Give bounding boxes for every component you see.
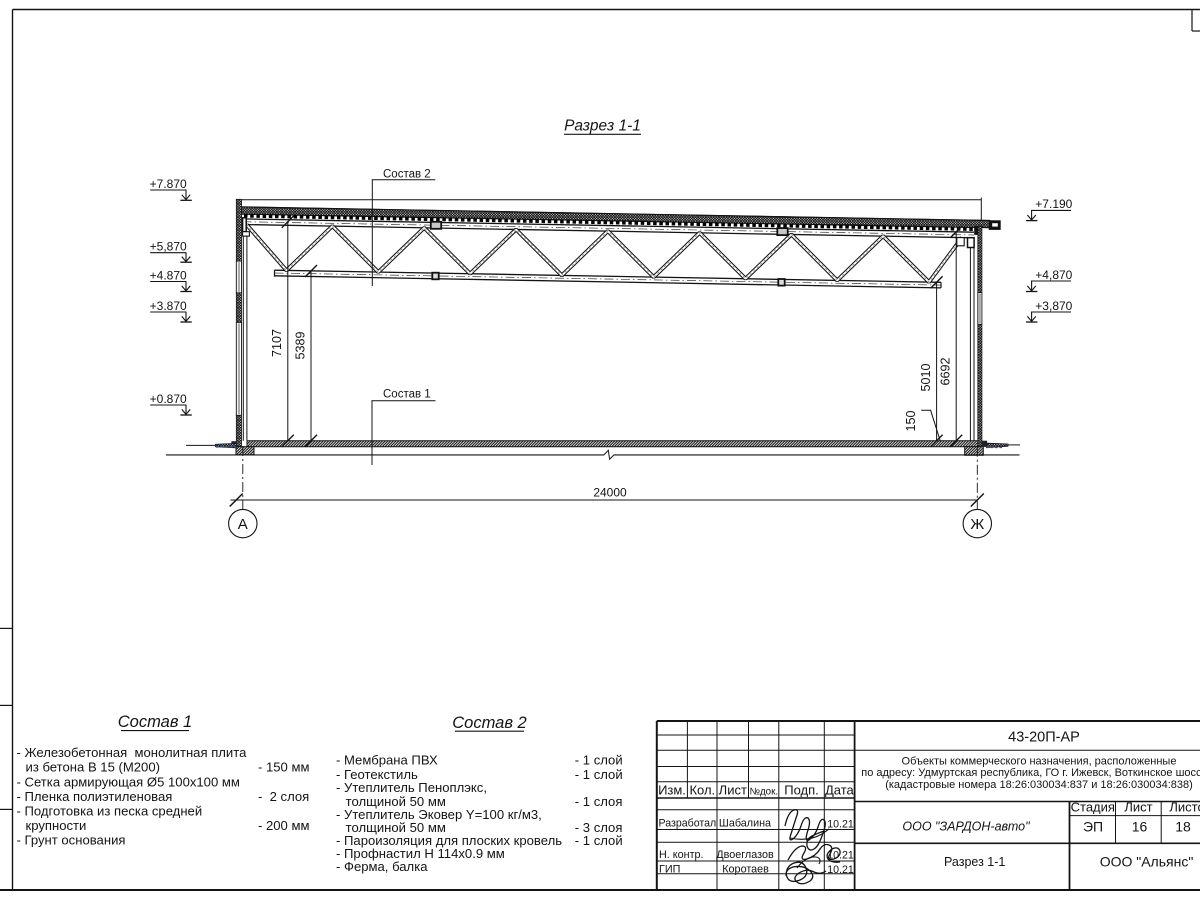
svg-text:- 200 мм: - 200 мм: [258, 818, 310, 833]
svg-text:Лист: Лист: [1124, 800, 1152, 815]
svg-text:- 1 слой: - 1 слой: [575, 833, 623, 848]
svg-text:- 2 слоя: - 2 слоя: [258, 789, 309, 804]
svg-text:Дата: Дата: [825, 782, 855, 797]
svg-text:крупности: крупности: [26, 818, 87, 833]
svg-text:16: 16: [1132, 818, 1148, 834]
svg-text:Листов: Листов: [1169, 800, 1200, 815]
svg-text:- Сетка армирующая Ø5 100x100: - Сетка армирующая Ø5 100x100 мм: [17, 774, 240, 789]
svg-text:Состав 2: Состав 2: [383, 169, 431, 181]
svg-text:+4,870: +4,870: [1035, 268, 1072, 282]
svg-text:+7.190: +7.190: [1035, 197, 1072, 211]
svg-text:- Ферма, балка: - Ферма, балка: [336, 859, 428, 874]
svg-text:Двоеглазов: Двоеглазов: [716, 849, 774, 861]
svg-text:- Пленка полиэтиленовая: - Пленка полиэтиленовая: [17, 789, 173, 804]
svg-text:24000: 24000: [593, 485, 627, 499]
svg-text:Кол.: Кол.: [689, 782, 715, 797]
svg-text:5389: 5389: [293, 331, 307, 359]
svg-text:10.21: 10.21: [827, 864, 854, 876]
svg-text:Разрез 1-1: Разрез 1-1: [944, 855, 1005, 869]
svg-text:18: 18: [1175, 818, 1191, 834]
svg-text:из бетона В 15 (М200): из бетона В 15 (М200): [26, 760, 161, 775]
svg-text:10.21: 10.21: [827, 818, 854, 830]
svg-text:по адресу: Удмуртская республи: по адресу: Удмуртская республика, ГО г. …: [861, 767, 1200, 779]
svg-text:+7.870: +7.870: [150, 177, 187, 191]
svg-text:Н. контр.: Н. контр.: [659, 849, 704, 861]
svg-text:- Грунт основания: - Грунт основания: [17, 833, 126, 848]
svg-text:ООО "ЗАРДОН-авто": ООО "ЗАРДОН-авто": [902, 819, 1030, 833]
svg-text:(кадастровые номера 18:26:0300: (кадастровые номера 18:26:030034:837 и 1…: [885, 779, 1193, 791]
svg-text:Состав 1: Состав 1: [118, 713, 192, 731]
svg-text:Состав 2: Состав 2: [452, 714, 526, 732]
svg-text:Подп.: Подп.: [784, 782, 819, 797]
svg-text:ГИП: ГИП: [659, 863, 680, 875]
svg-text:Коротаев: Коротаев: [722, 863, 769, 875]
svg-text:+3.870: +3.870: [150, 299, 187, 313]
svg-text:Разработал: Разработал: [659, 817, 717, 829]
svg-text:Ж: Ж: [970, 516, 984, 533]
svg-text:+5,870: +5,870: [150, 240, 187, 254]
svg-text:43-20П-АР: 43-20П-АР: [1008, 730, 1080, 746]
svg-text:- 1 слоя: - 1 слоя: [575, 794, 623, 809]
svg-text:6692: 6692: [939, 357, 953, 385]
svg-text:Стадия: Стадия: [1071, 800, 1115, 815]
svg-text:+0.870: +0.870: [150, 392, 187, 406]
svg-text:Изм.: Изм.: [658, 782, 686, 797]
svg-text:Шабалина: Шабалина: [719, 817, 771, 829]
svg-text:- Утеплитель Пеноплэкс,: - Утеплитель Пеноплэкс,: [336, 780, 487, 795]
svg-text:+3,870: +3,870: [1035, 299, 1072, 313]
svg-text:7107: 7107: [270, 329, 284, 357]
svg-text:- Подготовка из песка средней: - Подготовка из песка средней: [17, 804, 203, 819]
svg-text:- 1 слой: - 1 слой: [575, 753, 623, 768]
svg-text:- 1 слой: - 1 слой: [575, 767, 623, 782]
svg-text:- 150 мм: - 150 мм: [258, 760, 310, 775]
svg-text:Лист: Лист: [719, 782, 747, 797]
svg-text:+4.870: +4.870: [150, 268, 187, 282]
svg-text:Состав 1: Состав 1: [383, 388, 431, 400]
svg-text:А: А: [238, 516, 248, 533]
svg-text:5010: 5010: [919, 363, 933, 391]
svg-text:Разрез 1-1: Разрез 1-1: [564, 118, 641, 135]
svg-text:150: 150: [904, 410, 918, 431]
svg-text:ООО "Альянс": ООО "Альянс": [1100, 854, 1194, 870]
svg-text:- Железобетонная монолитная п: - Железобетонная монолитная плита: [17, 745, 248, 760]
svg-text:ЭП: ЭП: [1083, 818, 1103, 834]
svg-text:Объекты коммерческого назначен: Объекты коммерческого назначения, распол…: [902, 755, 1177, 767]
svg-text:№док.: №док.: [749, 786, 778, 797]
svg-text:- Мембрана ПВХ: - Мембрана ПВХ: [336, 753, 438, 768]
